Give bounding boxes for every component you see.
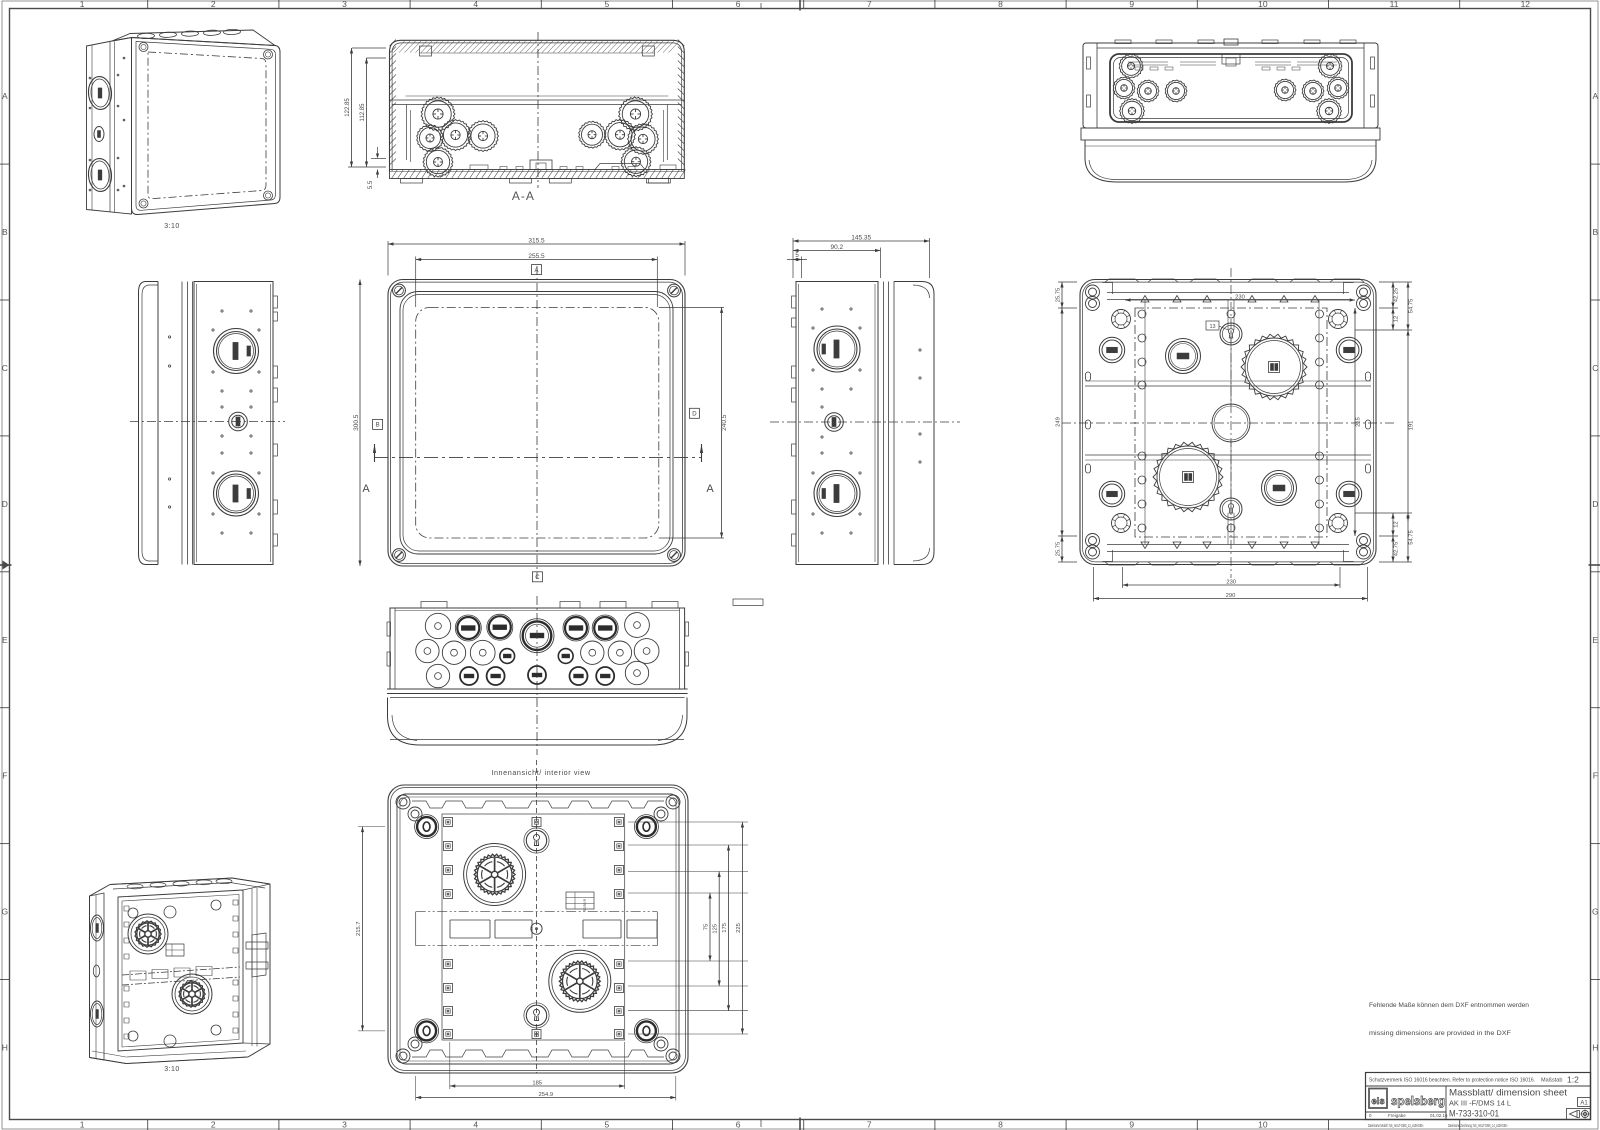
svg-text:Massblatt/ dimension sheet: Massblatt/ dimension sheet <box>1449 1088 1567 1099</box>
svg-text:D: D <box>1592 499 1598 509</box>
svg-text:C: C <box>2 363 8 373</box>
svg-text:A-A: A-A <box>512 189 535 203</box>
svg-text:145.35: 145.35 <box>851 235 871 242</box>
svg-text:Fehlende Maße können dem DXF e: Fehlende Maße können dem DXF entnommen w… <box>1369 1002 1529 1009</box>
svg-text:12: 12 <box>1394 316 1400 322</box>
svg-text:300.5: 300.5 <box>353 414 360 431</box>
svg-text:E: E <box>2 635 8 645</box>
svg-text:4: 4 <box>473 0 478 9</box>
svg-text:10: 10 <box>1258 1120 1268 1130</box>
svg-text:2: 2 <box>211 0 216 9</box>
svg-text:01.02.16: 01.02.16 <box>1430 1113 1448 1118</box>
svg-text:Schutzvermerk ISO 16016 beacht: Schutzvermerk ISO 16016 beachten. Refer … <box>1369 1078 1535 1084</box>
svg-text:els: els <box>1371 1096 1384 1107</box>
svg-text:G: G <box>1592 907 1599 917</box>
svg-text:230: 230 <box>1226 580 1236 586</box>
svg-text:H: H <box>2 1043 8 1053</box>
svg-text:F: F <box>2 771 7 781</box>
svg-text:1:2: 1:2 <box>1567 1075 1579 1085</box>
svg-text:D: D <box>692 412 697 418</box>
svg-text:spelsberg: spelsberg <box>1391 1094 1445 1108</box>
svg-text:B: B <box>1592 227 1598 237</box>
svg-text:50/50 R: 50/50 R <box>583 898 587 911</box>
svg-text:M-733-310-01: M-733-310-01 <box>1449 1109 1499 1120</box>
svg-text:H: H <box>1592 1043 1598 1053</box>
svg-text:175: 175 <box>722 923 728 933</box>
svg-text:230: 230 <box>1235 295 1245 301</box>
svg-text:B: B <box>2 227 8 237</box>
svg-text:AK III -F/DMS 14 L: AK III -F/DMS 14 L <box>1449 1101 1511 1108</box>
svg-text:122.85: 122.85 <box>345 98 351 117</box>
svg-text:240.5: 240.5 <box>721 414 728 431</box>
svg-text:3: 3 <box>342 0 347 9</box>
svg-text:54.75: 54.75 <box>1409 530 1415 545</box>
svg-text:missing dimensions are provide: missing dimensions are provided in the D… <box>1369 1030 1511 1037</box>
svg-text:9: 9 <box>1129 1120 1134 1130</box>
svg-text:11: 11 <box>1390 0 1399 9</box>
svg-text:13: 13 <box>1209 324 1215 330</box>
svg-text:10: 10 <box>1258 0 1268 9</box>
svg-text:A: A <box>706 483 714 495</box>
svg-text:112.85: 112.85 <box>360 103 366 122</box>
svg-text:3:10: 3:10 <box>164 223 180 230</box>
svg-text:6: 6 <box>736 0 741 9</box>
svg-text:125: 125 <box>713 924 719 934</box>
svg-text:B: B <box>376 423 380 429</box>
svg-text:12: 12 <box>1394 521 1400 527</box>
svg-text:D: D <box>2 499 8 509</box>
svg-text:A: A <box>2 91 8 101</box>
svg-text:42.75: 42.75 <box>1394 542 1400 557</box>
svg-text:42.25: 42.25 <box>1394 288 1400 303</box>
svg-text:4: 4 <box>473 1120 478 1130</box>
svg-text:Dateiname Zeichnung: NS_AKILT-: Dateiname Zeichnung: NS_AKILT-DMS_14_L6Z… <box>1448 1123 1508 1128</box>
svg-text:215: 215 <box>1356 417 1362 427</box>
svg-text:1: 1 <box>80 1120 85 1130</box>
svg-text:E: E <box>1592 635 1598 645</box>
svg-text:25.75: 25.75 <box>1056 288 1062 303</box>
svg-text:1: 1 <box>80 0 85 9</box>
svg-text:3: 3 <box>342 1120 347 1130</box>
svg-text:F: F <box>1593 771 1598 781</box>
svg-text:2: 2 <box>211 1120 216 1130</box>
svg-text:9: 9 <box>1129 0 1134 9</box>
svg-text:255.5: 255.5 <box>528 253 545 260</box>
svg-text:A: A <box>1592 91 1598 101</box>
svg-text:C: C <box>1592 363 1598 373</box>
svg-text:315.5: 315.5 <box>528 238 545 245</box>
svg-text:225: 225 <box>736 923 742 933</box>
svg-text:12: 12 <box>1521 0 1531 9</box>
svg-text:5: 5 <box>605 1120 610 1130</box>
svg-text:290: 290 <box>1226 593 1236 599</box>
svg-text:Dateiname Modell: NS_AKILT-DMS: Dateiname Modell: NS_AKILT-DMS_14_L6ZHGE… <box>1368 1123 1424 1128</box>
svg-text:3:10: 3:10 <box>164 1066 180 1073</box>
svg-text:90.2: 90.2 <box>830 244 843 251</box>
svg-text:185: 185 <box>532 1081 542 1087</box>
svg-text:7: 7 <box>867 1120 872 1130</box>
svg-text:75: 75 <box>704 924 710 930</box>
svg-text:7: 7 <box>867 0 872 9</box>
svg-text:54.75: 54.75 <box>1409 299 1415 314</box>
svg-text:249: 249 <box>1056 417 1062 427</box>
svg-text:G: G <box>1 907 8 917</box>
svg-text:8: 8 <box>998 1120 1003 1130</box>
svg-text:25.75: 25.75 <box>1056 542 1062 557</box>
svg-text:A1: A1 <box>1580 1100 1588 1106</box>
svg-text:Freigabe: Freigabe <box>1388 1113 1406 1118</box>
svg-text:215.7: 215.7 <box>356 921 362 936</box>
svg-text:Maßstab: Maßstab <box>1541 1078 1562 1084</box>
svg-text:A: A <box>362 483 370 495</box>
svg-text:5: 5 <box>605 0 610 9</box>
svg-text:8: 8 <box>998 0 1003 9</box>
svg-text:A: A <box>534 268 538 274</box>
svg-text:Innenansicht/ interior view: Innenansicht/ interior view <box>491 768 591 777</box>
svg-text:191: 191 <box>1409 421 1415 431</box>
svg-text:C: C <box>535 575 540 581</box>
svg-text:6: 6 <box>736 1120 741 1130</box>
svg-text:254.9: 254.9 <box>539 1092 554 1098</box>
svg-text:5.5: 5.5 <box>368 180 374 189</box>
